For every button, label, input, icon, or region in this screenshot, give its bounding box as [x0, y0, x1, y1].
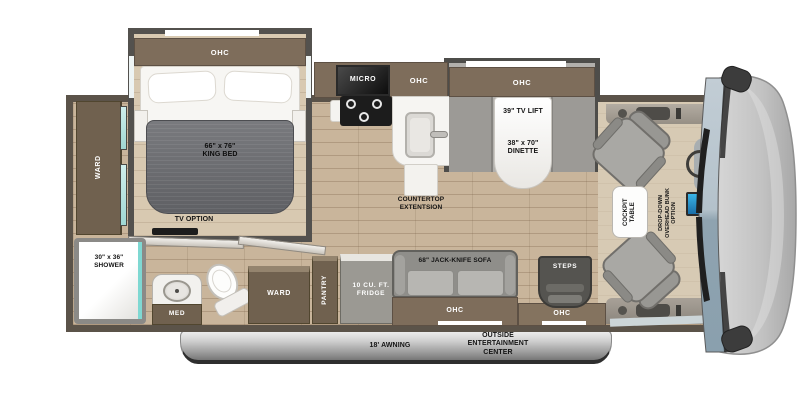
dinette-bench-left — [449, 97, 493, 172]
med-label: MED — [152, 310, 202, 318]
countertop-extension-label: COUNTERTOP EXTENTSION — [378, 196, 464, 212]
shower-label: 30" x 36" SHOWER — [80, 254, 138, 270]
switch-icon — [676, 108, 681, 119]
microwave-label: MICRO — [336, 76, 390, 84]
dinette-label: 38" x 70" DINETTE — [490, 140, 556, 157]
faucet-icon — [430, 131, 448, 138]
sofa-window — [438, 321, 502, 325]
fridge-label: 10 CU. FT. FRIDGE — [340, 282, 402, 298]
awning-label: 18' AWNING — [340, 342, 440, 350]
steps-label: STEPS — [538, 263, 592, 271]
burner-icon — [359, 112, 369, 122]
tv-option-screen — [152, 228, 198, 235]
tv-option-label: TV OPTION — [146, 216, 242, 224]
rear-wardrobe-label: WARD — [95, 137, 103, 197]
med-sink-drain — [175, 289, 179, 293]
sofa-cushion-left — [407, 270, 454, 296]
entry-ohc-label: OHC — [553, 310, 570, 318]
entry-window — [542, 321, 586, 325]
pantry-label: PANTRY — [321, 260, 329, 320]
king-bed-label: 66" x 76" KING BED — [160, 143, 280, 160]
sofa-label: 68" JACK-KNIFE SOFA — [394, 257, 516, 265]
bedroom-ohc-label: OHC — [211, 48, 229, 57]
bedroom-slide-window — [165, 30, 259, 36]
nightstand-right — [292, 110, 306, 142]
ward-mirror-door-bottom — [120, 164, 127, 226]
sofa-cushion-right — [457, 270, 504, 296]
burner-icon — [346, 99, 356, 109]
step-tread — [548, 295, 582, 303]
burner-icon — [372, 99, 382, 109]
dinette-ohc-cabinet: OHC — [449, 67, 595, 97]
front-cap — [688, 58, 800, 360]
countertop-extension — [404, 164, 438, 196]
dinette-slide-window — [466, 61, 566, 67]
step-tread — [546, 284, 584, 292]
switch-icon — [676, 305, 681, 316]
bedroom-side-window-right — [306, 56, 311, 98]
tv-lift-label: 39" TV LIFT — [488, 108, 558, 116]
ward-mirror-door-top — [120, 106, 127, 150]
king-bed-blanket — [146, 120, 294, 214]
bed-pillow-left — [147, 70, 216, 104]
outside-entertainment-label: OUTSIDE ENTERTAINMENT CENTER — [452, 332, 544, 357]
dinette-ohc-label: OHC — [513, 78, 531, 87]
kitchen-ohc-label: OHC — [392, 76, 446, 85]
shower-glass — [138, 242, 142, 319]
ward-cabinet-label: WARD — [248, 290, 310, 298]
kitchen-sink-basin — [410, 118, 430, 152]
bed-pillow-right — [223, 70, 292, 104]
cooktop — [340, 96, 392, 126]
speaker-icon — [618, 306, 627, 315]
rv-floorplan: 18' AWNING OUTSIDE ENTERTAINMENT CENTER … — [0, 0, 800, 408]
overhead-bunk-option-label: DROP-DOWN OVERHEAD BUNK OPTION — [658, 173, 678, 253]
cockpit-table-label: COCKPIT TABLE — [623, 187, 637, 237]
bedroom-ohc-cabinet: OHC — [134, 38, 306, 66]
sofa-ohc-label: OHC — [446, 307, 463, 315]
